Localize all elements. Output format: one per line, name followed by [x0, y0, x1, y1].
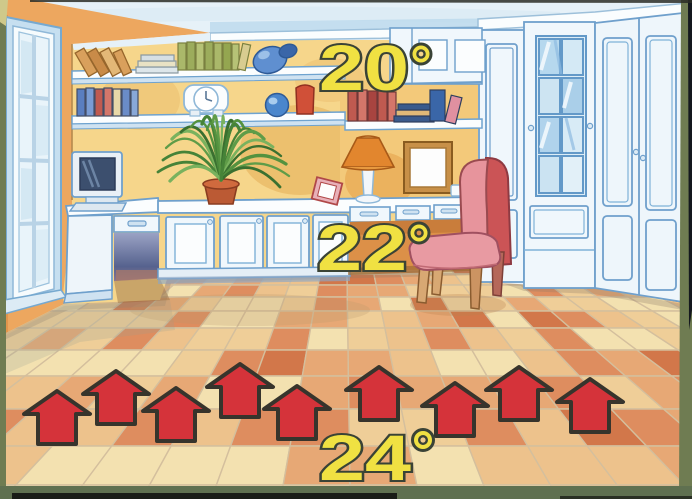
svg-text:24: 24: [319, 422, 412, 494]
svg-text:20: 20: [319, 32, 409, 104]
svg-text:22: 22: [317, 212, 407, 284]
